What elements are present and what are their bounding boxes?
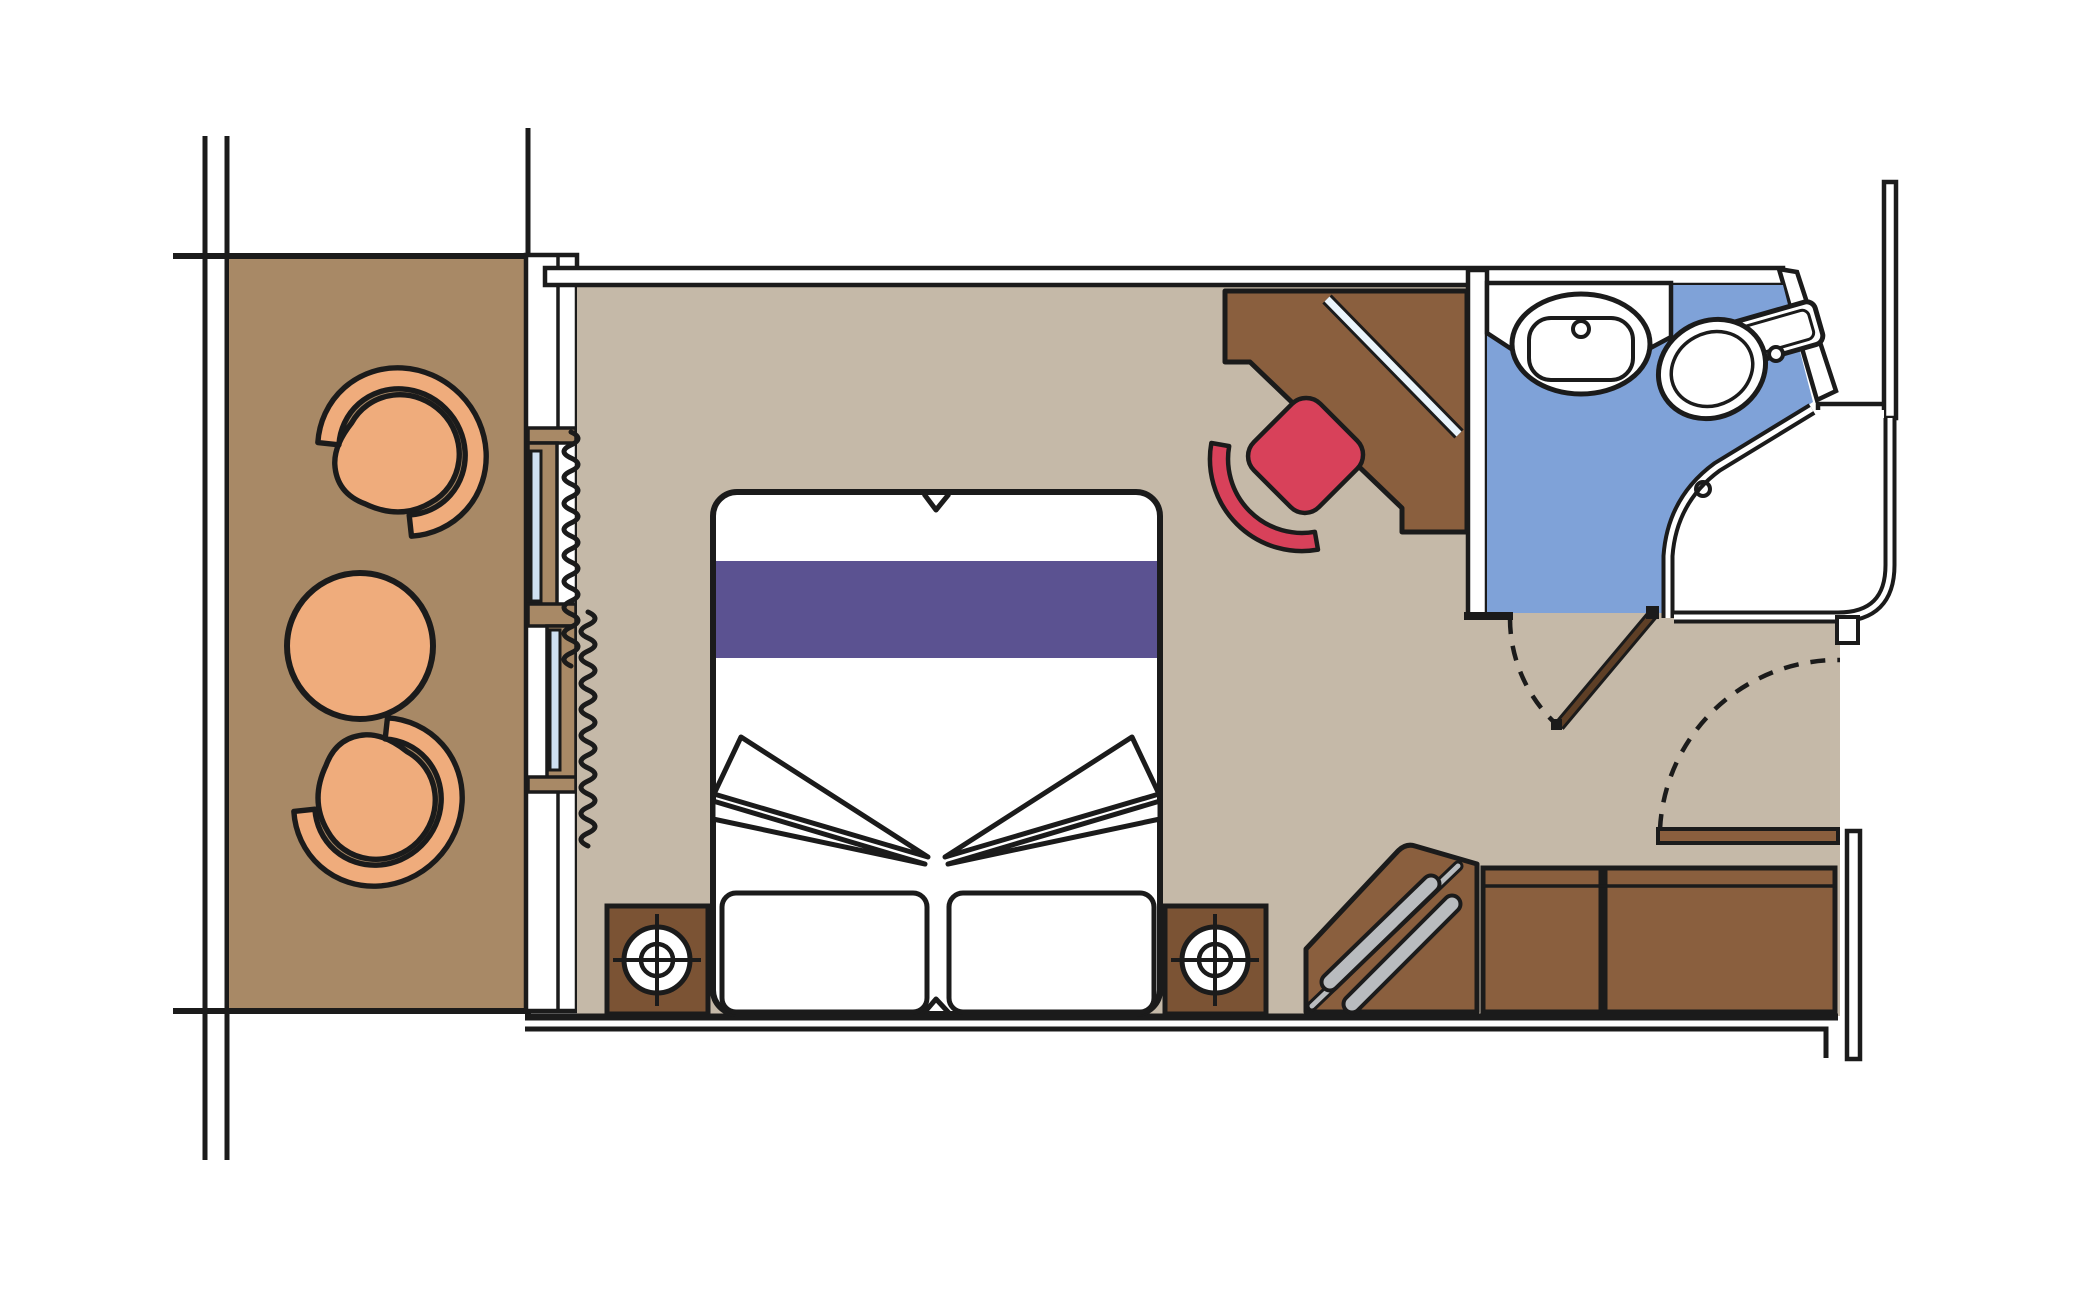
door-tip-block [1551, 719, 1562, 730]
door-hinge-block [1646, 606, 1659, 619]
door-sill-bottom [528, 777, 576, 792]
wardrobe-cabinet-1 [1483, 868, 1601, 1012]
bed-runner [716, 561, 1157, 658]
door-sill-top [528, 428, 576, 443]
shower-step-notch [1837, 617, 1858, 643]
sliding-door-wall [526, 255, 577, 1011]
entry-door-leaf [1658, 829, 1838, 843]
wall-right-upper [1884, 182, 1896, 418]
pillow-left [722, 893, 927, 1012]
floor-plan-drawing [0, 0, 2100, 1299]
pillow-right [949, 893, 1154, 1012]
nightstand-left [607, 906, 708, 1014]
faucet-icon [1573, 321, 1589, 337]
flush-button-icon [1769, 347, 1783, 361]
floor-plan-page [0, 0, 2100, 1299]
wardrobe-cabinet-2 [1605, 868, 1835, 1012]
wall-bathroom-left [1468, 270, 1487, 616]
wardrobe [1306, 845, 1835, 1012]
glass-pane-outer [531, 451, 541, 601]
nightstand-right [1165, 906, 1266, 1014]
corridor-wall [1847, 831, 1860, 1059]
glass-pane-inner [550, 630, 560, 770]
balcony-table [287, 573, 433, 719]
wall-bottom-lower-line [525, 1029, 1826, 1058]
